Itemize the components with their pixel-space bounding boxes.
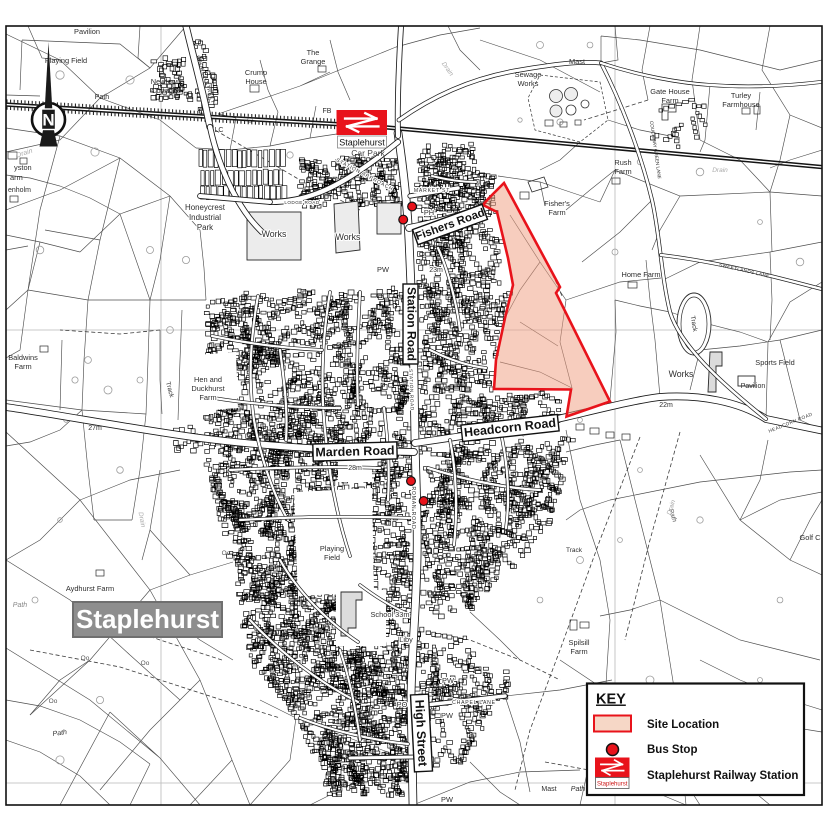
svg-text:Liby: Liby — [399, 635, 413, 644]
svg-text:Works: Works — [336, 232, 361, 242]
svg-text:Path: Path — [571, 786, 586, 793]
svg-text:Pavilion: Pavilion — [741, 383, 766, 390]
svg-text:Playing Field: Playing Field — [45, 56, 87, 65]
svg-text:ROMAN ROAD: ROMAN ROAD — [410, 486, 416, 529]
svg-text:28m: 28m — [348, 465, 362, 472]
svg-text:Spilsill: Spilsill — [569, 638, 590, 647]
svg-text:Farm: Farm — [614, 167, 631, 176]
svg-text:Oo: Oo — [81, 655, 90, 662]
svg-text:Farm: Farm — [570, 647, 587, 656]
svg-text:School 33m: School 33m — [370, 610, 409, 619]
svg-text:PW: PW — [442, 676, 454, 685]
svg-text:Bus Stop: Bus Stop — [647, 744, 697, 756]
svg-text:LODGE ROAD: LODGE ROAD — [284, 200, 319, 205]
svg-text:Path: Path — [13, 602, 28, 609]
svg-text:N: N — [42, 111, 54, 130]
svg-text:Park: Park — [197, 223, 213, 232]
svg-text:Staplehurst Railway Station: Staplehurst Railway Station — [647, 770, 798, 782]
svg-text:Drain: Drain — [712, 167, 728, 174]
svg-text:Marden Road: Marden Road — [315, 443, 395, 459]
svg-text:Fisher's: Fisher's — [544, 199, 570, 208]
svg-text:Sports Field: Sports Field — [755, 358, 794, 367]
svg-text:Farm: Farm — [661, 96, 678, 105]
svg-text:Staplehurst: Staplehurst — [597, 782, 628, 788]
svg-text:Gate House: Gate House — [650, 87, 689, 96]
svg-text:Baldwins: Baldwins — [8, 353, 38, 362]
svg-text:PW: PW — [377, 265, 389, 274]
svg-text:The: The — [307, 48, 320, 57]
svg-text:Hen and: Hen and — [194, 375, 222, 384]
svg-text:Staplehurst: Staplehurst — [339, 137, 385, 147]
svg-text:yston: yston — [14, 163, 32, 172]
svg-text:Cottages: Cottages — [151, 86, 181, 95]
svg-text:Duckhurst: Duckhurst — [191, 384, 224, 393]
svg-text:PW: PW — [441, 795, 453, 804]
svg-text:Golf C: Golf C — [800, 533, 822, 542]
svg-text:Works: Works — [518, 79, 539, 88]
svg-text:enholm: enholm — [8, 187, 31, 194]
svg-text:PW: PW — [441, 711, 453, 720]
svg-text:Works: Works — [669, 369, 694, 379]
svg-text:Staplehurst: Staplehurst — [76, 604, 219, 634]
svg-text:Crump: Crump — [245, 68, 267, 77]
svg-text:Rush: Rush — [614, 158, 631, 167]
svg-text:Playing: Playing — [320, 544, 344, 553]
svg-text:Aydhurst Farm: Aydhurst Farm — [66, 584, 114, 593]
svg-text:MARKET ST: MARKET ST — [414, 188, 450, 194]
svg-text:Mast: Mast — [569, 57, 585, 66]
svg-text:Oo: Oo — [49, 698, 58, 705]
svg-text:Station Road: Station Road — [405, 287, 419, 361]
svg-text:PO: PO — [397, 700, 408, 709]
svg-text:Car Park: Car Park — [351, 148, 385, 158]
svg-text:Farmhouse: Farmhouse — [722, 100, 759, 109]
svg-text:LC: LC — [215, 127, 224, 134]
svg-text:Industrial: Industrial — [189, 213, 221, 222]
svg-text:Pavilion: Pavilion — [74, 27, 100, 36]
svg-text:Oo: Oo — [141, 660, 150, 667]
svg-text:Works: Works — [262, 229, 287, 239]
svg-text:Path: Path — [95, 94, 110, 101]
svg-text:Sewage: Sewage — [515, 70, 542, 79]
svg-text:Oo: Oo — [222, 550, 231, 557]
svg-text:Newtown: Newtown — [151, 77, 181, 86]
svg-text:Field: Field — [324, 553, 340, 562]
svg-text:Honeycrest: Honeycrest — [185, 203, 226, 212]
svg-text:Farm: Farm — [14, 362, 31, 371]
svg-text:Turley: Turley — [731, 91, 752, 100]
svg-text:FB: FB — [323, 108, 332, 115]
svg-text:CHAPEL LANE: CHAPEL LANE — [452, 700, 496, 706]
svg-text:KEY: KEY — [596, 692, 626, 708]
svg-text:Track: Track — [566, 547, 583, 554]
svg-text:22m: 22m — [659, 402, 673, 409]
svg-text:Site Location: Site Location — [647, 719, 719, 731]
svg-text:27m: 27m — [88, 425, 102, 432]
svg-text:PH: PH — [424, 208, 434, 217]
svg-text:Home Farm: Home Farm — [621, 270, 660, 279]
svg-text:23m: 23m — [429, 267, 443, 274]
svg-text:Farm: Farm — [548, 208, 565, 217]
svg-text:House: House — [245, 77, 266, 86]
svg-text:Farm: Farm — [199, 393, 216, 402]
svg-text:Mast: Mast — [541, 786, 556, 793]
svg-text:arm: arm — [10, 173, 23, 182]
svg-text:Grange: Grange — [301, 57, 326, 66]
